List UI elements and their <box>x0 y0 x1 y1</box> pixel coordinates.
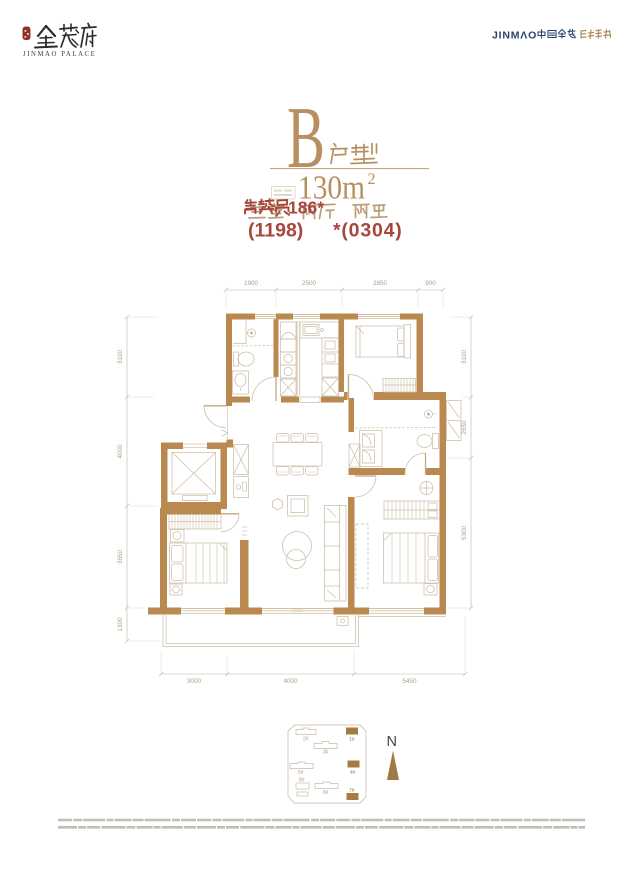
svg-text:JINMAO PALACE: JINMAO PALACE <box>23 51 96 58</box>
svg-text:186*: 186* <box>288 198 324 218</box>
svg-text:3100: 3100 <box>461 350 468 365</box>
svg-text:1900: 1900 <box>244 280 259 287</box>
svg-text:2: 2 <box>368 171 376 188</box>
svg-text:5300: 5300 <box>461 526 468 541</box>
svg-text:900: 900 <box>425 280 436 287</box>
svg-text:4000: 4000 <box>117 444 124 459</box>
svg-text:4000: 4000 <box>283 678 298 685</box>
svg-text:2650: 2650 <box>461 420 468 435</box>
svg-text:7#: 7# <box>349 788 355 794</box>
svg-text:3#: 3# <box>323 750 329 756</box>
svg-text:3650: 3650 <box>117 550 124 565</box>
svg-text:5450: 5450 <box>402 678 417 685</box>
svg-text:3000: 3000 <box>187 678 202 685</box>
svg-text:3100: 3100 <box>117 350 124 365</box>
svg-text:2500: 2500 <box>302 280 317 287</box>
svg-text:6#: 6# <box>323 790 329 796</box>
svg-text:1#: 1# <box>349 737 355 743</box>
svg-text:(1198): (1198) <box>248 220 303 242</box>
svg-text:4#: 4# <box>350 770 356 776</box>
svg-text:5#: 5# <box>298 770 304 776</box>
svg-text:JINMΛO: JINMΛO <box>492 30 537 42</box>
svg-text:N: N <box>387 734 397 750</box>
svg-text:1300: 1300 <box>117 617 124 632</box>
svg-text:8#: 8# <box>299 778 305 784</box>
svg-text:*(0304): *(0304) <box>333 220 403 242</box>
svg-text:2#: 2# <box>303 737 309 743</box>
svg-text:2850: 2850 <box>373 280 388 287</box>
